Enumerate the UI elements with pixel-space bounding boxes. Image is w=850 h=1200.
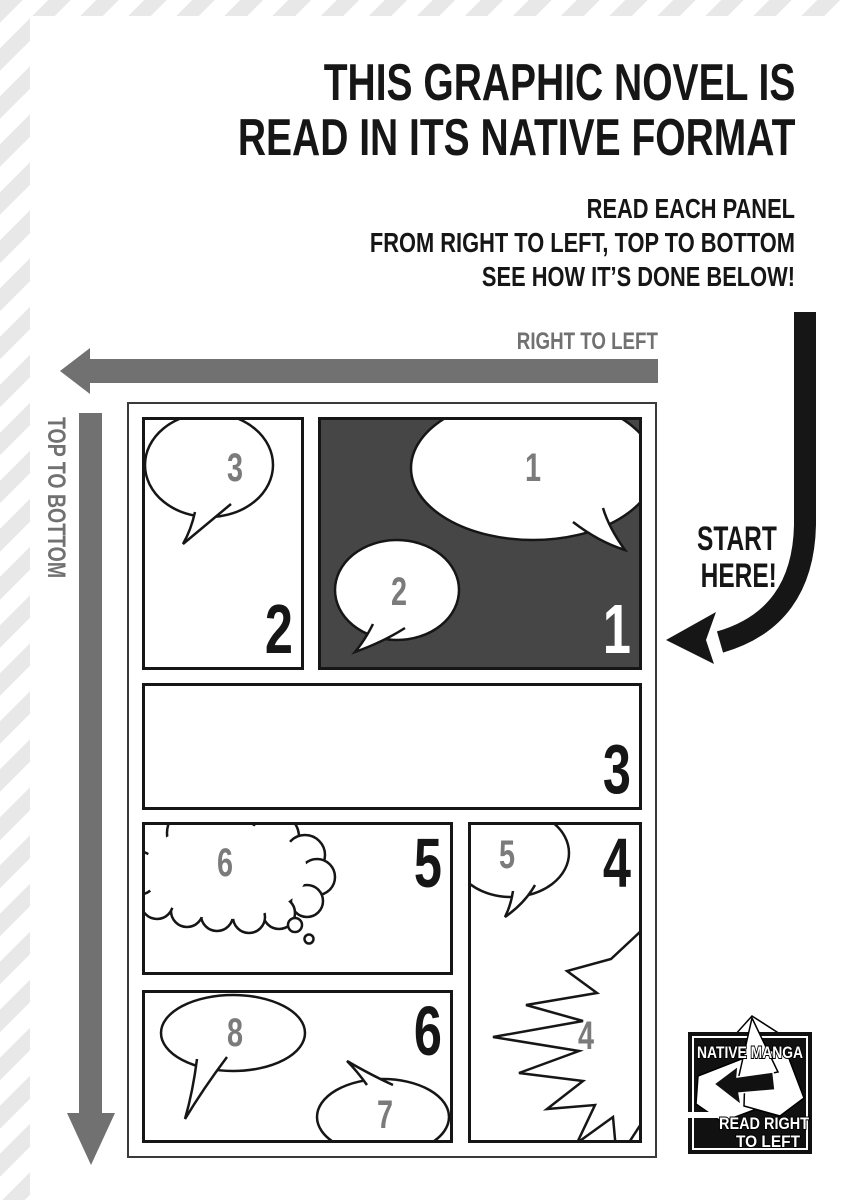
logo-bottom-text-2: TO LEFT: [736, 1132, 801, 1151]
top-stripe-border: [0, 0, 850, 16]
panel-number: 3: [603, 734, 631, 804]
bubble-number: 3: [227, 448, 243, 488]
comic-page-diagram: 3 2 1 2 1 3: [127, 402, 657, 1158]
start-here-arrow-icon: [640, 300, 840, 670]
page-subtitle: READ EACH PANEL FROM RIGHT TO LEFT, TOP …: [370, 192, 795, 294]
bubble-number: 2: [391, 572, 407, 612]
comic-panel-5: 6 5: [142, 822, 453, 975]
top-to-bottom-arrow-icon: [79, 413, 102, 1113]
panel-number: 1: [603, 594, 631, 664]
bubble-number: 7: [377, 1095, 393, 1135]
comic-panel-1: 1 2 1: [318, 417, 642, 670]
right-to-left-label: RIGHT TO LEFT: [517, 328, 658, 356]
instruction-page: THIS GRAPHIC NOVEL IS READ IN ITS NATIVE…: [0, 0, 850, 1200]
bubble-number: 6: [217, 843, 233, 883]
top-to-bottom-label: TOP TO BOTTOM: [43, 417, 68, 578]
title-line-2: READ IN ITS NATIVE FORMAT: [237, 111, 795, 166]
comic-panel-3: 3: [142, 683, 642, 810]
right-to-left-arrowhead-icon: [60, 348, 90, 394]
bubble-number: 8: [227, 1013, 243, 1053]
bubble-number: 1: [525, 448, 541, 488]
logo-bottom-text-1: READ RIGHT: [719, 1114, 810, 1133]
comic-panel-6: 8 7 6: [142, 990, 453, 1143]
comic-panel-4: 5 4 4: [468, 822, 642, 1143]
speech-bubbles-icon: [321, 420, 639, 667]
title-line-1: THIS GRAPHIC NOVEL IS: [237, 56, 795, 111]
thought-bubble-icon: [145, 825, 450, 972]
right-to-left-arrow-icon: [88, 359, 658, 383]
page-title: THIS GRAPHIC NOVEL IS READ IN ITS NATIVE…: [237, 56, 795, 166]
subtitle-line-2: FROM RIGHT TO LEFT, TOP TO BOTTOM: [370, 226, 795, 260]
bubble-number: 4: [578, 1016, 594, 1056]
panel-number: 4: [603, 828, 631, 898]
native-manga-logo: NATIVE MANGA READ RIGHT TO LEFT: [686, 1014, 814, 1158]
top-to-bottom-arrowhead-icon: [67, 1113, 115, 1165]
bubble-number: 5: [499, 835, 515, 875]
panel-number: 6: [414, 996, 442, 1066]
subtitle-line-1: READ EACH PANEL: [370, 192, 795, 226]
panel-number: 5: [414, 828, 442, 898]
speech-bubbles-icon: [145, 993, 450, 1140]
left-stripe-border: [0, 0, 30, 1200]
panel-number: 2: [265, 594, 293, 664]
subtitle-line-3: SEE HOW IT’S DONE BELOW!: [370, 260, 795, 294]
logo-top-text: NATIVE MANGA: [697, 1043, 803, 1062]
comic-panel-2: 3 2: [142, 417, 304, 670]
